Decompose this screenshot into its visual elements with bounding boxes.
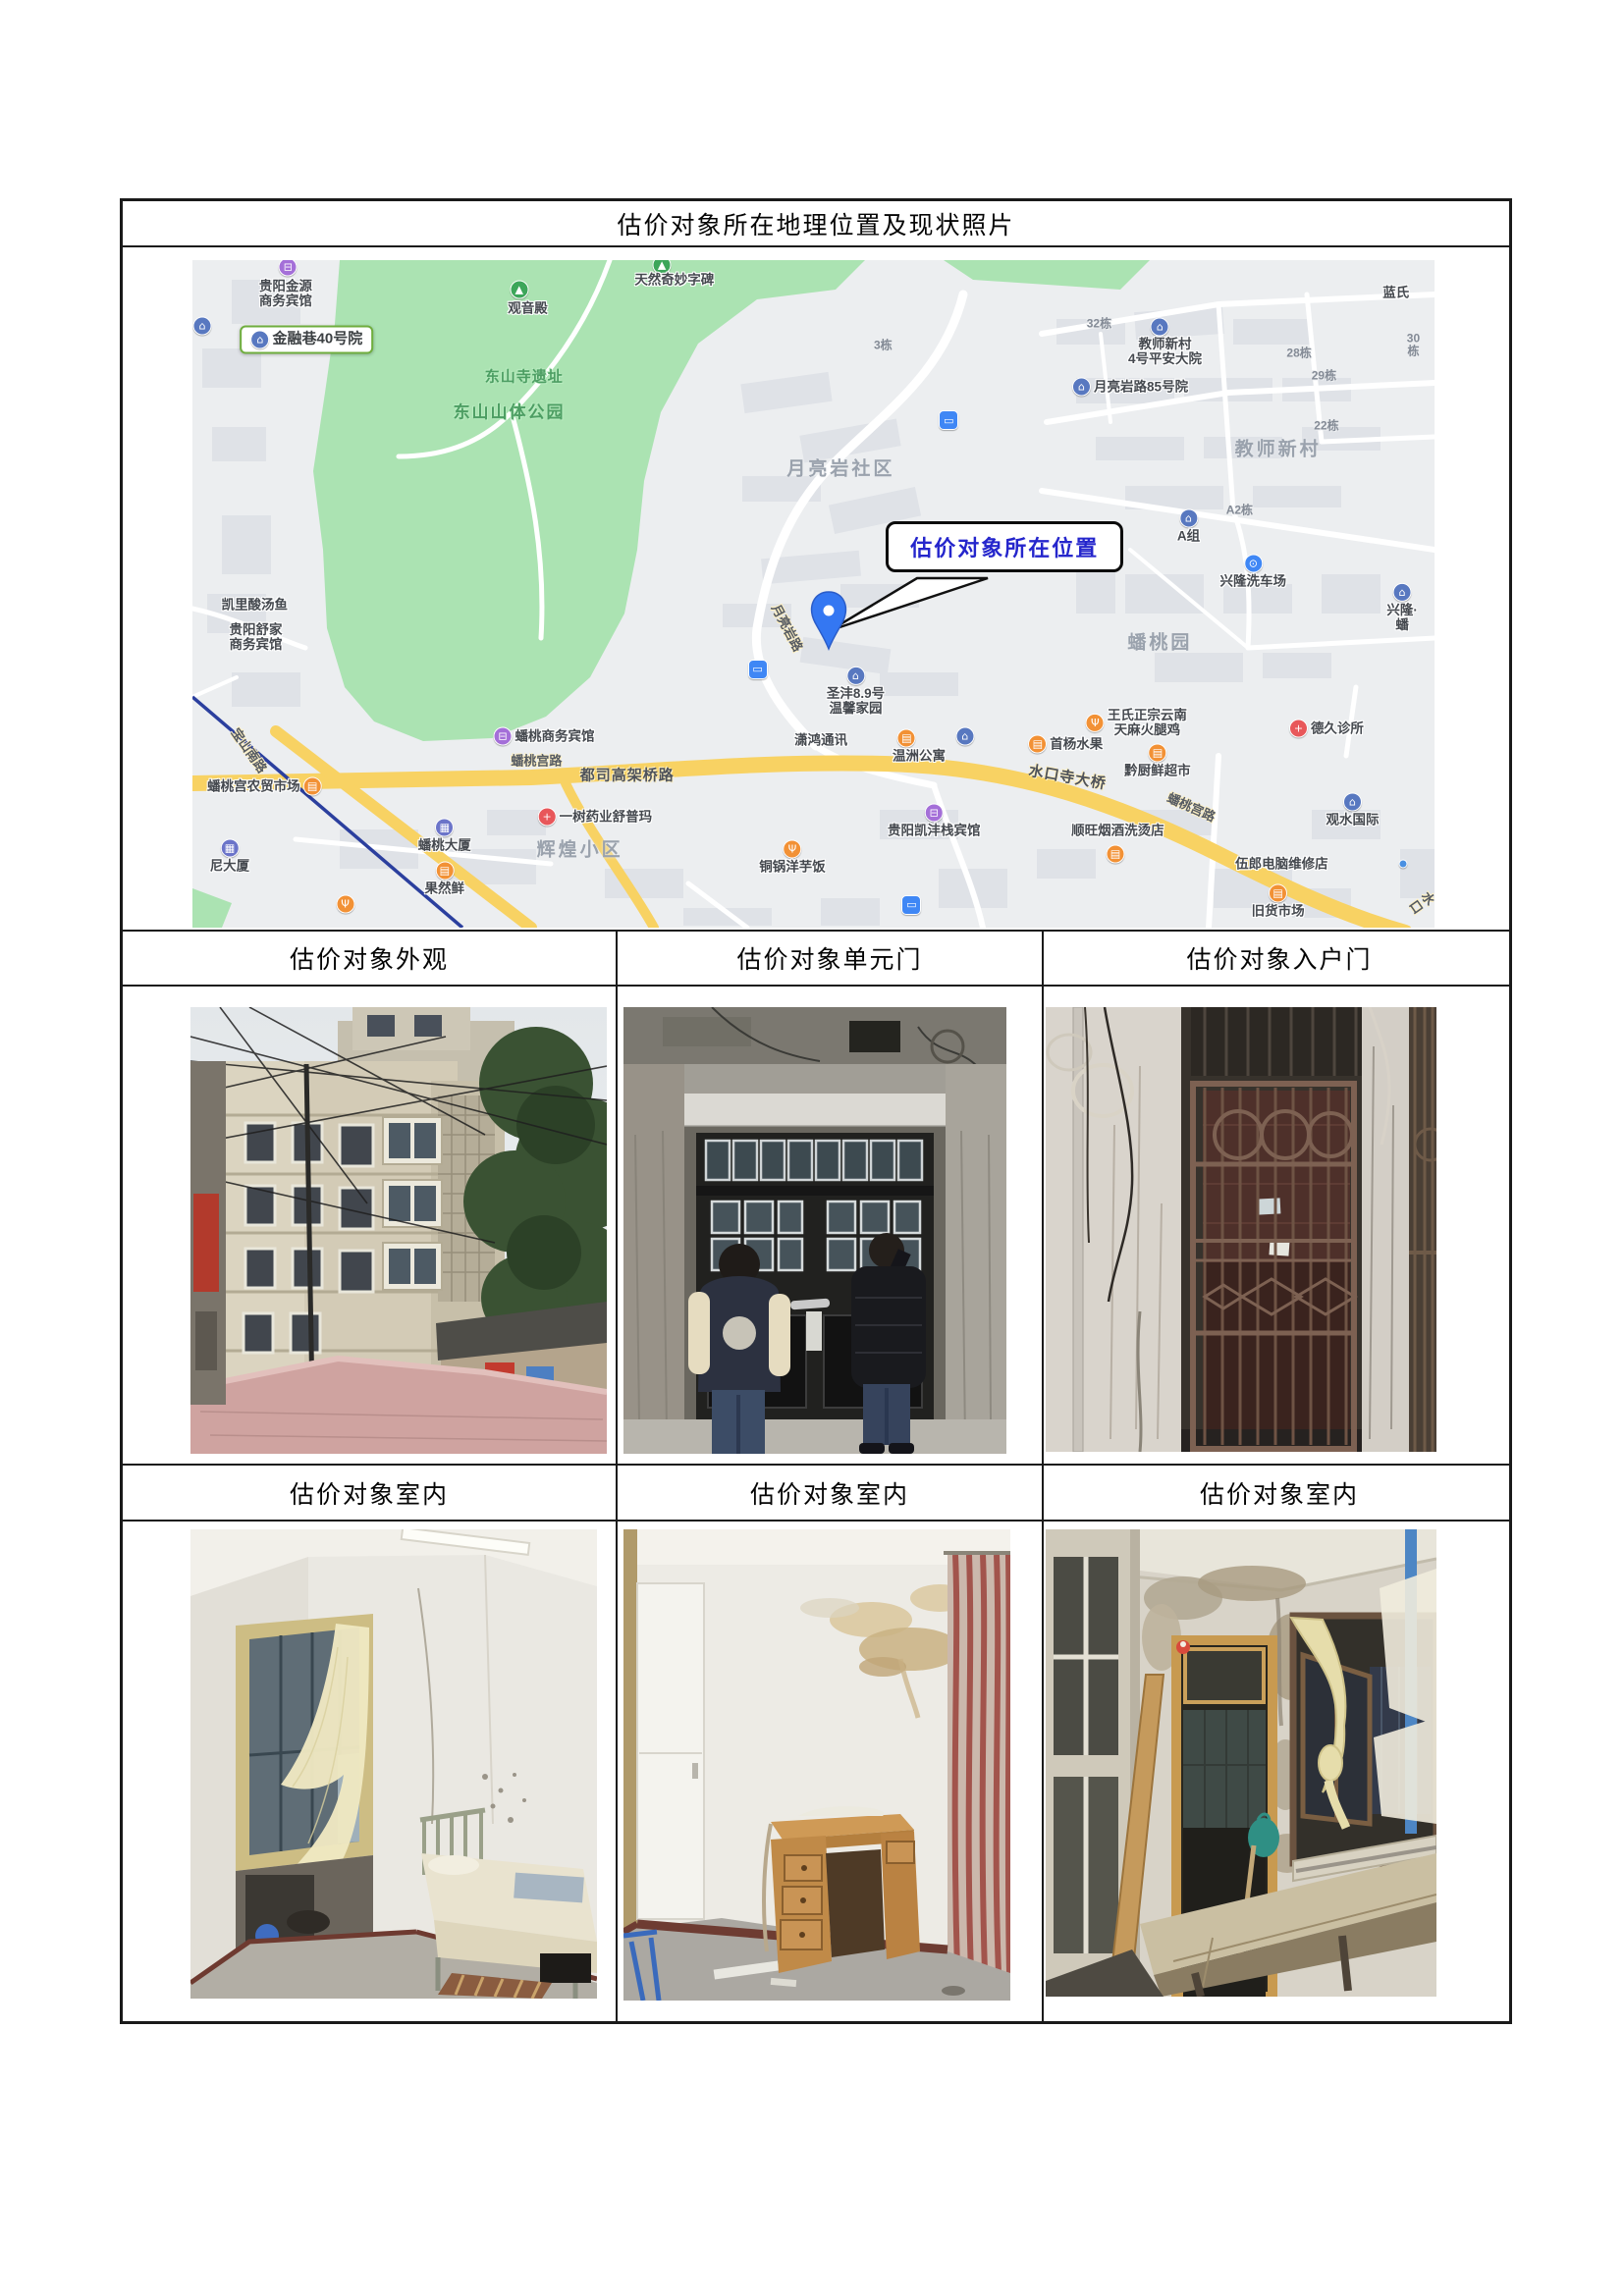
map-label-text: 东山寺遗址 bbox=[485, 369, 564, 386]
hotel-icon: ⊟ bbox=[493, 726, 512, 745]
food-icon: Ψ bbox=[336, 895, 354, 914]
map-label-text: 月亮岩路85号院 bbox=[1094, 380, 1188, 395]
map-label-text: 贵阳金源 商务宾馆 bbox=[259, 279, 312, 308]
photo-row-2 bbox=[123, 1522, 1509, 2021]
hotel-map-icon: ⊟ bbox=[279, 260, 298, 276]
map-label-text: 东山山体公园 bbox=[454, 403, 566, 422]
map-label-text: 王氏正宗云南 天麻火腿鸡 bbox=[1108, 708, 1187, 737]
estate-icon: ⌂ bbox=[1072, 378, 1091, 397]
map-label: 月亮岩路 bbox=[768, 602, 804, 654]
dot-map-icon bbox=[1399, 859, 1408, 868]
map-label: ▤黔厨鲜超市 bbox=[1124, 743, 1191, 777]
map-label: 教师新村 bbox=[1235, 439, 1322, 459]
map-label: 教师新村 4号平安大院 bbox=[1128, 337, 1202, 366]
map-label: 蟠桃园 bbox=[1127, 633, 1192, 654]
map-label: ⌂圣沣8.9号 温馨家园 bbox=[827, 667, 885, 716]
map-label: ▤旧货市场 bbox=[1252, 883, 1305, 918]
tree bbox=[463, 1027, 607, 1343]
map-label: ⌂金融巷40号院 bbox=[241, 325, 374, 353]
map-label: ▦蟠桃大厦 bbox=[418, 819, 471, 853]
header-entry-door: 估价对象入户门 bbox=[1186, 940, 1372, 976]
map-label-text: 蟠桃宫农贸市场 bbox=[207, 778, 300, 793]
map-label-text: 德久诊所 bbox=[1311, 721, 1364, 735]
map-label-text: 蟠桃宫路 bbox=[1164, 790, 1217, 824]
shop-icon: ▤ bbox=[1106, 845, 1124, 864]
estate-icon: ⌂ bbox=[955, 726, 974, 745]
photo-row-1 bbox=[123, 987, 1509, 1466]
bus-icon: ▭ bbox=[748, 660, 768, 679]
map-label: 水口 bbox=[1407, 889, 1435, 916]
photo-unit-door bbox=[623, 1007, 1006, 1454]
map-label-text: 月亮岩社区 bbox=[786, 458, 894, 479]
map-label-text: 兴隆·蟠 bbox=[1386, 602, 1419, 631]
map-label-text: A2栋 bbox=[1226, 504, 1253, 516]
map-label-text: 30栋 bbox=[1403, 333, 1425, 359]
map-labels-layer: ⊟贵阳金源 商务宾馆⌂金融巷40号院⌂▲观音殿▲天然奇妙字碑东山寺遗址东山山体公… bbox=[192, 260, 1435, 928]
map-label-text: 旧货市场 bbox=[1252, 903, 1305, 918]
map-label: ⌂兴隆·蟠 bbox=[1386, 582, 1419, 631]
bus-icon: ▭ bbox=[939, 410, 958, 430]
map-label-text: 水口 bbox=[1407, 889, 1435, 916]
map-label: 潇鸿通讯 bbox=[794, 732, 847, 747]
map-label-text: 金融巷40号院 bbox=[273, 332, 363, 348]
map-label: 月亮岩社区 bbox=[786, 458, 894, 479]
map-label-text: 3栋 bbox=[874, 339, 893, 351]
map-label: 凯里酸汤鱼 bbox=[222, 597, 289, 612]
map-label-text: 28栋 bbox=[1286, 347, 1311, 359]
shop-icon: ▤ bbox=[303, 776, 322, 795]
map-label-text: 圣沣8.9号 温馨家园 bbox=[827, 686, 885, 716]
shop-map-icon: ▤ bbox=[897, 728, 916, 747]
map-label-text: 32栋 bbox=[1087, 318, 1111, 331]
left-wall bbox=[1046, 1007, 1191, 1452]
map-label: ▤蟠桃宫农贸市场 bbox=[207, 776, 322, 795]
map-label-text: 一树药业舒普玛 bbox=[560, 810, 653, 825]
estate-icon: ⌂ bbox=[1393, 582, 1412, 601]
right-wall bbox=[1362, 1007, 1436, 1452]
map-label: ⌂月亮岩路85号院 bbox=[1072, 378, 1188, 397]
map-label-text: 潇鸿通讯 bbox=[794, 732, 847, 747]
map-label: Ψ铜锅洋芋饭 bbox=[759, 839, 826, 874]
estate-map-icon: ⌂ bbox=[193, 317, 212, 336]
carwash-icon: ⊙ bbox=[1244, 554, 1263, 572]
header-unit-door: 估价对象单元门 bbox=[736, 940, 922, 976]
map-label-text: 伍郎电脑维修店 bbox=[1235, 856, 1328, 871]
map-label-text: 温洲公寓 bbox=[893, 749, 946, 764]
map-label-text: 都司高架桥路 bbox=[580, 768, 675, 784]
map-label-text: 兴隆洗车场 bbox=[1220, 573, 1287, 588]
map-label-text: 教师新村 4号平安大院 bbox=[1128, 337, 1202, 366]
header-row-2: 估价对象室内 估价对象室内 估价对象室内 bbox=[123, 1466, 1509, 1522]
map-label: ▤首杨水果 bbox=[1028, 735, 1103, 754]
shop-icon: ▤ bbox=[1028, 735, 1047, 754]
photo-location-table: 估价对象所在地理位置及现状照片 bbox=[120, 198, 1512, 2024]
dot-icon bbox=[1399, 859, 1408, 868]
location-map: ⊟贵阳金源 商务宾馆⌂金融巷40号院⌂▲观音殿▲天然奇妙字碑东山寺遗址东山山体公… bbox=[192, 260, 1435, 928]
cabinet bbox=[637, 1583, 704, 1919]
map-label-text: 黔厨鲜超市 bbox=[1124, 763, 1191, 777]
map-label: 顺旺烟酒洗烫店 bbox=[1071, 823, 1164, 837]
map-label: 都司高架桥路 bbox=[580, 768, 675, 784]
photo-cell-interior-2 bbox=[618, 1522, 1044, 2021]
map-label: ⊙兴隆洗车场 bbox=[1220, 554, 1287, 588]
map-label-text: 铜锅洋芋饭 bbox=[759, 859, 826, 874]
left-building bbox=[190, 1061, 226, 1405]
food-icon: Ψ bbox=[783, 839, 801, 858]
building-icon: ▦ bbox=[435, 819, 454, 837]
estate-icon: ⌂ bbox=[1179, 508, 1198, 527]
estate-map-icon: ⌂ bbox=[955, 726, 974, 745]
map-label-text: 蟠桃宫路 bbox=[511, 755, 562, 770]
map-label-text: 月亮岩路 bbox=[768, 602, 804, 654]
estate-icon: ⌂ bbox=[193, 317, 212, 336]
estate-icon: ⌂ bbox=[1151, 318, 1169, 337]
map-label-text: 果然鲜 bbox=[425, 881, 465, 895]
map-label: ⊟贵阳凯沣栈宾馆 bbox=[888, 804, 981, 838]
photo-interior-desk-room bbox=[623, 1529, 1010, 2001]
map-label-text: 首杨水果 bbox=[1050, 736, 1103, 751]
header-cell: 估价对象室内 bbox=[123, 1466, 618, 1520]
map-label-text: 水口寺大桥 bbox=[1027, 763, 1108, 792]
clinic-icon: + bbox=[1289, 719, 1308, 737]
map-label-text: 蟠桃园 bbox=[1127, 633, 1192, 654]
map-label-text: 宝山南路 bbox=[228, 725, 269, 775]
bus-icon: ▭ bbox=[901, 895, 921, 915]
hotel-icon: ⊟ bbox=[279, 260, 298, 276]
map-label: ⌂观水国际 bbox=[1326, 793, 1380, 828]
map-label-text: 尼大厦 bbox=[210, 858, 250, 873]
map-label-text: 观音殿 bbox=[508, 300, 548, 315]
map-label: +一树药业舒普玛 bbox=[538, 808, 653, 827]
shop-icon: ▤ bbox=[1148, 743, 1166, 762]
header-cell: 估价对象单元门 bbox=[618, 932, 1044, 985]
shop-icon: ▤ bbox=[435, 861, 454, 880]
map-label: 观音殿 bbox=[508, 300, 548, 315]
attraction-icon: ▲ bbox=[510, 280, 528, 298]
food-map-icon: Ψ bbox=[336, 895, 354, 914]
bus-map-icon: ▭ bbox=[901, 895, 921, 915]
map-label: 30栋 bbox=[1403, 333, 1425, 359]
map-label: 蓝氏 bbox=[1382, 286, 1409, 300]
map-label-text: 天然奇妙字碑 bbox=[634, 273, 714, 288]
map-label-text: 蟠桃商务宾馆 bbox=[514, 728, 594, 743]
photo-interior-balcony bbox=[1046, 1529, 1436, 1997]
bus-map-icon: ▭ bbox=[939, 410, 958, 430]
map-label: 3栋 bbox=[874, 339, 893, 351]
header-cell: 估价对象外观 bbox=[123, 932, 618, 985]
map-label: Ψ王氏正宗云南 天麻火腿鸡 bbox=[1086, 708, 1187, 737]
map-label: 22栋 bbox=[1314, 420, 1338, 433]
header-cell: 估价对象室内 bbox=[1044, 1466, 1515, 1520]
map-label-text: 观水国际 bbox=[1326, 813, 1380, 828]
map-label-text: 贵阳凯沣栈宾馆 bbox=[888, 824, 981, 838]
map-label: 宝山南路 bbox=[228, 725, 269, 775]
table-title-row: 估价对象所在地理位置及现状照片 bbox=[123, 201, 1509, 247]
photo-cell-interior-1 bbox=[123, 1522, 618, 2021]
map-label-text: 凯里酸汤鱼 bbox=[222, 597, 289, 612]
header-cell: 估价对象入户门 bbox=[1044, 932, 1515, 985]
map-label: 辉煌小区 bbox=[537, 839, 623, 860]
shop-icon: ▤ bbox=[1269, 883, 1287, 902]
photo-interior-bedroom bbox=[190, 1529, 597, 1999]
map-label-text: 教师新村 bbox=[1235, 439, 1322, 459]
map-label-text: A组 bbox=[1177, 528, 1200, 543]
photo-cell-entry-door bbox=[1044, 987, 1515, 1464]
page-title: 估价对象所在地理位置及现状照片 bbox=[617, 206, 1014, 241]
map-label: 贵阳金源 商务宾馆 bbox=[259, 279, 312, 308]
photo-cell-interior-3 bbox=[1044, 1522, 1515, 2021]
map-label: A2栋 bbox=[1226, 504, 1253, 516]
estate-icon: ⌂ bbox=[1343, 793, 1362, 812]
map-label-text: 辉煌小区 bbox=[537, 839, 623, 860]
hotel-icon: ⊟ bbox=[925, 804, 944, 823]
attraction-map-icon: ▲ bbox=[510, 280, 528, 298]
appraisal-report-page: { "page": { "title": "估价对象所在地理位置及现状照片" }… bbox=[0, 0, 1624, 2296]
map-label: 蟠桃宫路 bbox=[1164, 790, 1217, 824]
callout-text: 估价对象所在位置 bbox=[910, 536, 1099, 561]
map-label: 东山山体公园 bbox=[454, 403, 566, 422]
photo-cell-exterior bbox=[123, 987, 618, 1464]
bus-map-icon: ▭ bbox=[748, 660, 768, 679]
header-interior-2: 估价对象室内 bbox=[750, 1475, 909, 1511]
map-label-text: 22栋 bbox=[1314, 420, 1338, 433]
map-label: ⌂A组 bbox=[1177, 508, 1200, 543]
photo-cell-unit-door bbox=[618, 987, 1044, 1464]
header-interior-3: 估价对象室内 bbox=[1200, 1475, 1359, 1511]
map-label: 32栋 bbox=[1087, 318, 1111, 331]
map-label-text: 蓝氏 bbox=[1382, 286, 1409, 300]
header-cell: 估价对象室内 bbox=[618, 1466, 1044, 1520]
estate-map-icon: ⌂ bbox=[1151, 318, 1169, 337]
map-label-text: 顺旺烟酒洗烫店 bbox=[1071, 823, 1164, 837]
header-row-1: 估价对象外观 估价对象单元门 估价对象入户门 bbox=[123, 932, 1509, 987]
estate-icon: ⌂ bbox=[251, 330, 270, 348]
map-label: ▦尼大厦 bbox=[210, 838, 250, 873]
map-label: 天然奇妙字碑 bbox=[634, 273, 714, 288]
map-label-text: 蟠桃大厦 bbox=[418, 838, 471, 853]
pharmacy-icon: + bbox=[538, 808, 557, 827]
map-label: ▤果然鲜 bbox=[425, 861, 465, 895]
map-label-text: 贵阳舒家 商务宾馆 bbox=[230, 622, 283, 652]
shop-map-icon: ▤ bbox=[1106, 845, 1124, 864]
map-label: 28栋 bbox=[1286, 347, 1311, 359]
estate-icon: ⌂ bbox=[846, 667, 865, 685]
map-label: 水口寺大桥 bbox=[1027, 763, 1108, 792]
map-label: 贵阳舒家 商务宾馆 bbox=[230, 622, 283, 652]
map-row: ⊟贵阳金源 商务宾馆⌂金融巷40号院⌂▲观音殿▲天然奇妙字碑东山寺遗址东山山体公… bbox=[123, 247, 1509, 932]
photo-entry-door bbox=[1046, 1007, 1436, 1452]
header-exterior: 估价对象外观 bbox=[290, 940, 449, 976]
map-label: 蟠桃宫路 bbox=[511, 755, 562, 770]
header-interior-1: 估价对象室内 bbox=[290, 1475, 449, 1511]
ground bbox=[623, 1419, 1006, 1454]
shop-icon: ▤ bbox=[897, 728, 916, 747]
map-label: 伍郎电脑维修店 bbox=[1235, 856, 1328, 871]
photo-building-exterior bbox=[190, 1007, 607, 1454]
map-label: 东山寺遗址 bbox=[485, 369, 564, 386]
desk bbox=[764, 1806, 920, 1973]
map-label: 温洲公寓 bbox=[893, 749, 946, 764]
map-label: +德久诊所 bbox=[1289, 719, 1364, 737]
map-label-text: 29栋 bbox=[1312, 370, 1336, 383]
food-icon: Ψ bbox=[1086, 714, 1105, 732]
subject-location-callout: 估价对象所在位置 bbox=[886, 521, 1123, 572]
curtain bbox=[944, 1553, 1010, 1975]
map-label: 29栋 bbox=[1312, 370, 1336, 383]
map-label: ⊟蟠桃商务宾馆 bbox=[493, 726, 594, 745]
building-icon: ▦ bbox=[220, 838, 239, 857]
